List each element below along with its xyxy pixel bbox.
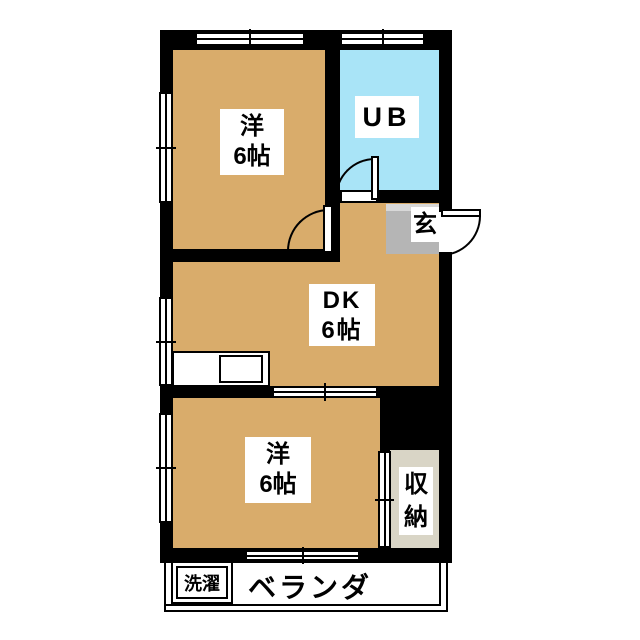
door-leaf-bath xyxy=(371,156,379,200)
room-name: 洋 xyxy=(245,440,311,470)
sliding-door-veranda xyxy=(245,550,360,561)
room-size: 6帖 xyxy=(309,316,375,346)
window-tick xyxy=(156,147,176,149)
window-tick xyxy=(249,29,251,49)
laundry-label: 洗濯 xyxy=(176,566,228,599)
label-dk: DK 6帖 xyxy=(309,284,375,346)
laundry-box: 洗濯 xyxy=(171,561,233,604)
label-western-top: 洋 6帖 xyxy=(220,109,284,175)
room-name: UB xyxy=(363,102,412,132)
label-storage: 収 納 xyxy=(399,467,433,535)
storage-char-2: 納 xyxy=(399,501,433,534)
floor-plan: 洋 6帖 UB 玄 DK 6帖 洋 6帖 収 納 洗濯 ベランダ xyxy=(0,0,640,640)
door-leaf-bedroom xyxy=(323,205,333,253)
room-size: 6帖 xyxy=(220,142,284,172)
storage-char-1: 収 xyxy=(399,468,433,501)
kitchen-sink xyxy=(219,355,263,383)
window-left-middle xyxy=(159,297,173,386)
label-western-bottom: 洋 6帖 xyxy=(245,437,311,503)
window-left-upper xyxy=(159,92,173,203)
window-tick xyxy=(156,467,176,469)
door-swing-entrance-arc xyxy=(441,216,481,256)
room-name: 洋 xyxy=(220,112,284,142)
window-tick xyxy=(382,29,384,49)
room-size: 6帖 xyxy=(245,470,311,500)
window-top-right xyxy=(340,32,425,46)
label-genkan: 玄 xyxy=(411,207,439,242)
veranda-label: ベランダ xyxy=(248,566,428,606)
window-left-lower xyxy=(159,413,173,523)
slider-tick xyxy=(302,547,304,564)
window-top-left xyxy=(195,32,305,46)
slider-tick xyxy=(324,383,326,401)
room-name: 玄 xyxy=(413,211,437,238)
sliding-door-storage xyxy=(378,451,391,548)
door-leaf-entrance xyxy=(441,209,481,217)
room-name: DK xyxy=(309,286,375,316)
window-tick xyxy=(156,341,176,343)
slider-tick xyxy=(375,499,394,501)
label-unit-bath: UB xyxy=(355,96,419,138)
sliding-door-dk-bedroom xyxy=(272,386,378,398)
